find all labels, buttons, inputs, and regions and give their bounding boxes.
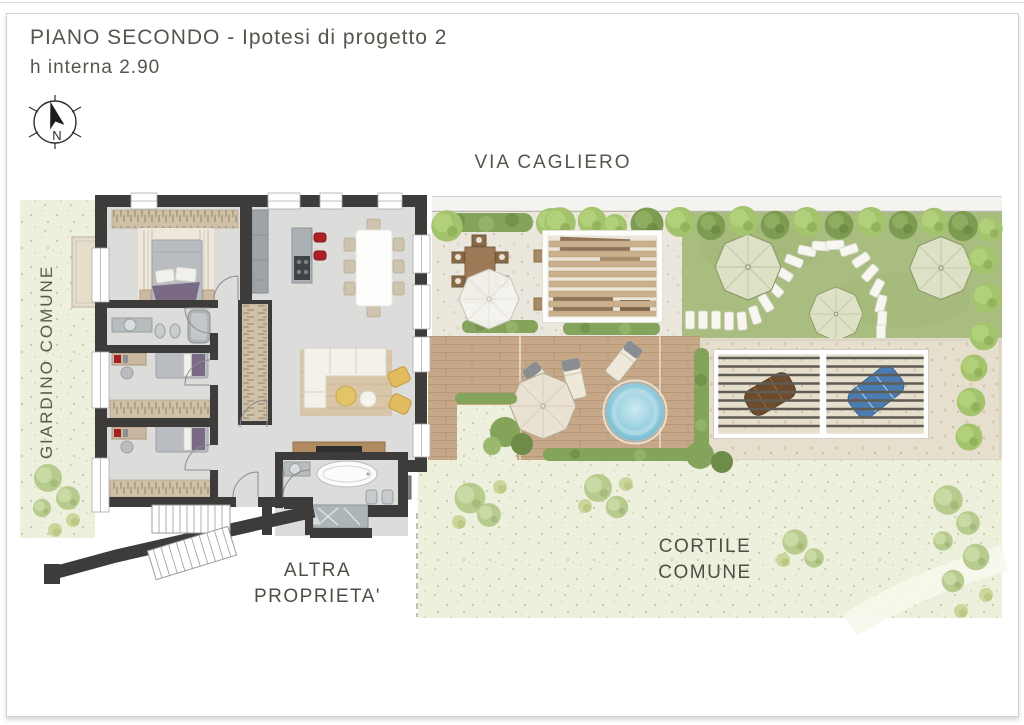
patio-umbrella: [459, 269, 519, 329]
toilet: [155, 324, 165, 338]
sink: [124, 319, 136, 331]
street-sidewalk: [432, 196, 1002, 212]
wardrobe: [110, 480, 212, 497]
toilet: [366, 490, 377, 504]
other-property-line1: ALTRA: [235, 558, 400, 584]
north-compass-icon: N: [29, 95, 81, 149]
floor-plan-drawing: N: [0, 0, 1024, 725]
courtyard-line2: COMUNE: [625, 560, 785, 586]
other-property-line2: PROPRIETA': [235, 584, 400, 610]
bidet: [170, 324, 180, 338]
cooktop: [294, 256, 310, 280]
common-courtyard-label: CORTILE COMUNE: [625, 534, 785, 586]
bar-stool: [314, 251, 326, 260]
dining-table: [356, 230, 392, 306]
carport-area: [700, 338, 1002, 462]
bar-stool: [314, 233, 326, 242]
pergola: [543, 231, 663, 323]
coffee-table: [336, 386, 356, 406]
common-garden-label: GIARDINO COMUNE: [37, 265, 57, 459]
wardrobe: [110, 400, 210, 418]
garden-umbrella: [809, 287, 863, 341]
other-property-label: ALTRA PROPRIETA': [235, 558, 400, 610]
deck-umbrella: [510, 373, 576, 439]
street-label: VIA CAGLIERO: [433, 152, 673, 174]
garden-umbrella: [910, 237, 973, 300]
building: [44, 193, 430, 617]
courtyard-line1: CORTILE: [625, 534, 785, 560]
jacuzzi: [604, 381, 667, 444]
bidet: [382, 490, 393, 504]
kitchen-tall-units: [252, 210, 268, 293]
page-title: PIANO SECONDO - Ipotesi di progetto 2: [30, 26, 447, 50]
page-subtitle: h interna 2.90: [30, 57, 160, 79]
tv: [316, 446, 362, 452]
garden-umbrella: [715, 234, 781, 300]
compass-north-label: N: [52, 128, 61, 143]
side-table: [360, 391, 376, 407]
